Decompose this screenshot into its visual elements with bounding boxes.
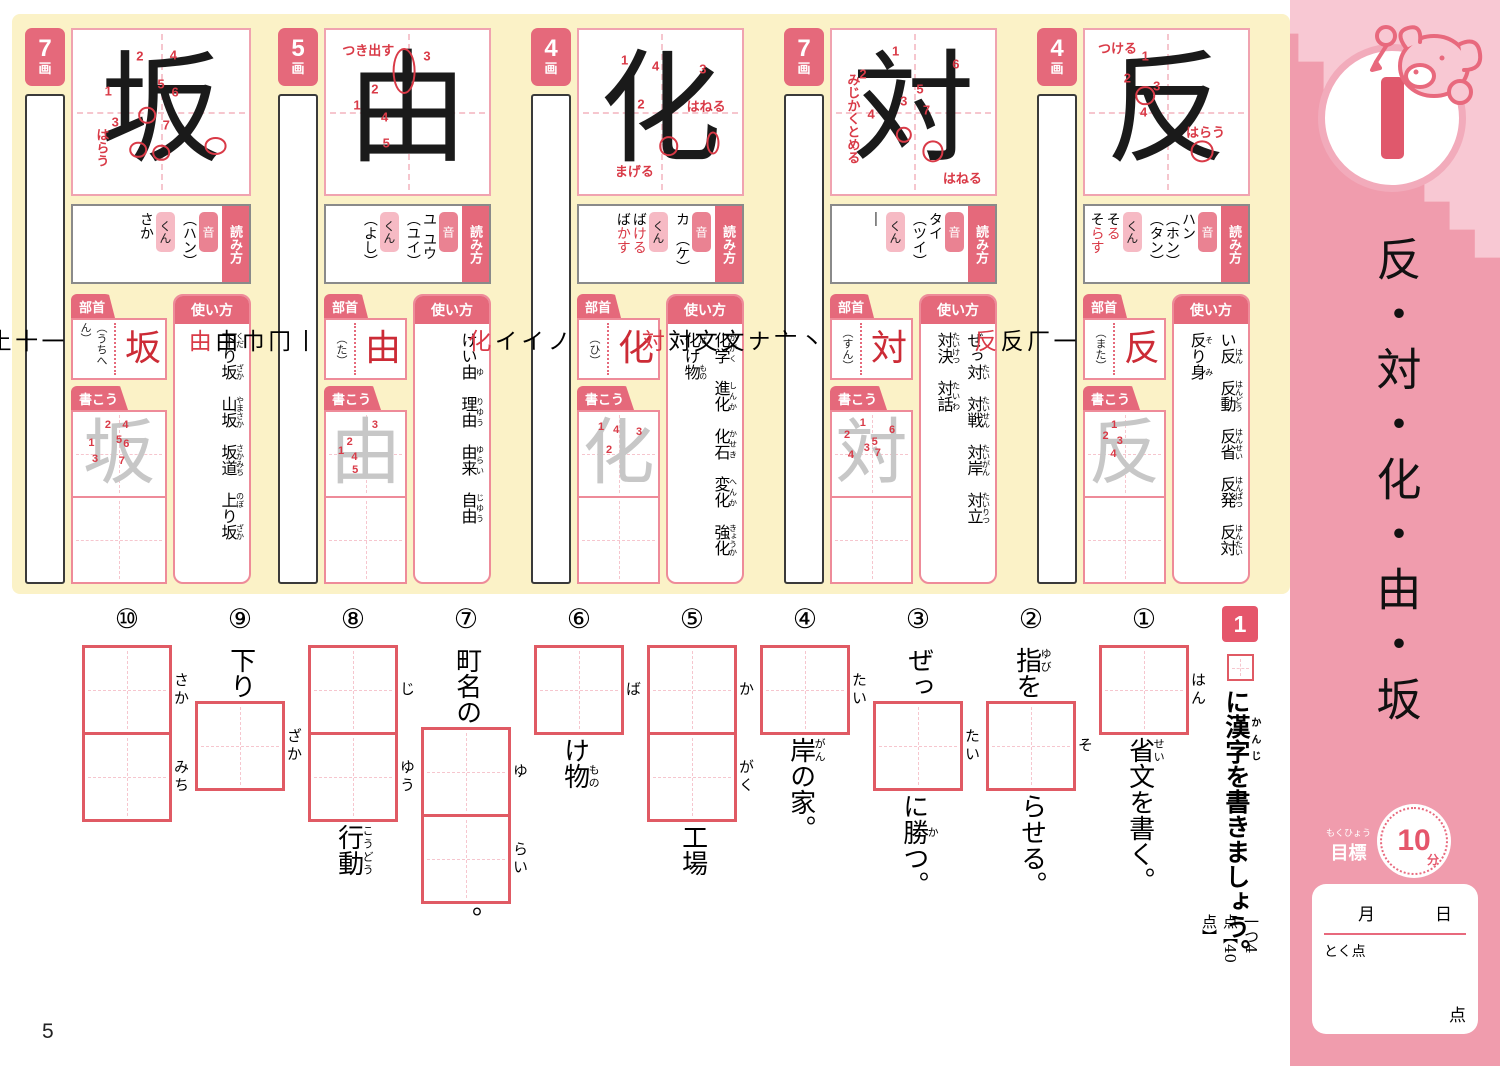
- kanji-display-box: 反1234つけるはらう: [1083, 28, 1250, 196]
- kun-reading-item: （よし）: [362, 212, 378, 268]
- on-tag: 音: [945, 212, 964, 252]
- on-tag: 音: [1198, 212, 1217, 252]
- radical-kanji: 由: [365, 331, 401, 367]
- stroke-number: 2: [606, 444, 612, 456]
- answer-box[interactable]: そ: [986, 701, 1076, 791]
- stroke-order-step: ナ: [743, 101, 769, 582]
- stroke-number: 1: [105, 83, 112, 98]
- stroke-highlight-circle: [393, 48, 416, 94]
- answer-box[interactable]: じ: [308, 645, 398, 735]
- guide-line: [1144, 651, 1145, 729]
- score-label: とく点: [1324, 941, 1466, 961]
- stroke-order-step: イ: [516, 101, 542, 582]
- radical-tab: 部首: [324, 294, 368, 318]
- stroke-number: 1: [892, 44, 899, 59]
- answer-box[interactable]: ゆ: [421, 727, 511, 817]
- guide-line: [805, 651, 806, 729]
- stroke-number: 2: [136, 49, 143, 64]
- furigana-hint: さか: [171, 672, 192, 708]
- guide-line: [127, 651, 128, 729]
- kanji-display-box: 坂1234567はらう: [71, 28, 251, 196]
- radical-box: 由（た）: [324, 318, 407, 380]
- stroke-order-step: 厂: [1022, 101, 1048, 582]
- stroke-count: 7: [797, 37, 810, 61]
- stroke-order-step: 土: [0, 101, 10, 582]
- stroke-order-strip: ノイイ化: [531, 94, 571, 584]
- on-reading-item: （ケ）: [674, 232, 690, 274]
- trace-cell[interactable]: 由32145: [326, 412, 405, 496]
- kanji-display-box: 由32145つき出す: [324, 28, 491, 196]
- kun-reading-text: （よし）: [362, 210, 378, 280]
- kanji-columns: 7画一十土坅坂坂坂坂1234567はらう読み方音（ハン）くんさか使い方下くだり坂…: [25, 28, 1290, 584]
- on-reading: 音（ハン）: [179, 206, 222, 282]
- on-reading-text: ハン（ホン）（タン）: [1148, 210, 1196, 280]
- guide-line: [619, 501, 620, 579]
- answer-box[interactable]: みち: [82, 732, 172, 822]
- furigana-hint: そ: [1075, 737, 1096, 755]
- write-practice-tab: 書こう: [1083, 386, 1140, 410]
- question: ④たい岸がんの家。: [755, 606, 855, 964]
- usage-word: い反はん: [1217, 332, 1243, 364]
- furigana-hint: ゆう: [397, 759, 418, 795]
- on-reading-item: （ツイ）: [911, 212, 927, 268]
- stroke-number: 3: [92, 453, 98, 465]
- question: ⑦町名のゆらい。: [416, 606, 516, 964]
- trace-cell[interactable]: 化1432: [579, 412, 658, 496]
- trace-kanji: 反: [1088, 417, 1160, 489]
- on-reading-item: （ホン）: [1164, 212, 1180, 268]
- stroke-number: 3: [636, 426, 642, 438]
- stroke-number: 2: [1124, 70, 1131, 85]
- stroke-number: 4: [613, 424, 619, 436]
- exercise-number-badge: 1: [1222, 606, 1258, 642]
- kun-reading: くん（よし）: [360, 206, 403, 282]
- on-reading-item: ユ: [421, 212, 437, 226]
- furigana-hint: たい: [849, 672, 870, 708]
- stroke-number: 7: [119, 455, 125, 467]
- on-reading-item: （ハン）: [181, 212, 197, 268]
- guide-line: [1125, 501, 1126, 579]
- question-number: ⑦: [454, 606, 478, 633]
- answer-box[interactable]: ざか: [195, 701, 285, 791]
- trace-cell[interactable]: 対1265374: [832, 412, 911, 496]
- stroke-order-step: 丶: [796, 101, 822, 582]
- question-number: ①: [1132, 606, 1156, 633]
- guide-line: [1240, 659, 1241, 676]
- stroke-highlight-circle: [152, 145, 170, 161]
- radical-tab: 部首: [1083, 294, 1127, 318]
- stroke-highlight-circle: [138, 107, 156, 123]
- usage-box: 使い方い反はん反動はんどう反省はんせい反発はんぱつ反対はんたい反そり身み: [1172, 294, 1250, 584]
- guide-line: [127, 738, 128, 816]
- readings-box: 読み方音ユユウ（ユイ）くん（よし）: [324, 204, 491, 284]
- stroke-number: 4: [351, 451, 357, 463]
- kanji-column: 4画一厂反反反1234つけるはらう読み方音ハン（ホン）（タン）くんそるそらす使い…: [1037, 28, 1250, 584]
- kun-reading-item: そらす: [1089, 212, 1105, 254]
- write-practice-tab: 書こう: [577, 386, 634, 410]
- stroke-number: 2: [844, 429, 850, 441]
- radical-tab: 部首: [71, 294, 115, 318]
- goal-time: もくひょう 目標 10 分: [1326, 804, 1451, 878]
- answer-box[interactable]: さか: [82, 645, 172, 735]
- on-tag: 音: [692, 212, 711, 252]
- stroke-order-step: イ: [490, 101, 516, 582]
- stroke-number: 4: [122, 419, 128, 431]
- on-reading-item: タイ: [927, 212, 943, 240]
- answer-box[interactable]: か: [647, 645, 737, 735]
- kanji-column: 5画丨冂巾由由由32145つき出す読み方音ユユウ（ユイ）くん（よし）使い方けい由…: [278, 28, 491, 584]
- radical-name: （すん）: [839, 327, 855, 371]
- trace-cell[interactable]: 坂1234567: [73, 412, 165, 496]
- usage-word: 反省はんせい: [1217, 428, 1243, 460]
- readings-header: 読み方: [1221, 206, 1248, 282]
- practice-cell[interactable]: [579, 496, 658, 582]
- stroke-order-step: 冂: [263, 101, 289, 582]
- radical-name: （ひ）: [586, 333, 602, 366]
- stroke-annotation: はらう: [1186, 122, 1225, 141]
- stroke-number: 7: [923, 103, 930, 118]
- guide-line: [353, 738, 354, 816]
- stroke-count-badge: 7画: [784, 28, 824, 86]
- usage-word: 反発はんぱつ: [1217, 476, 1243, 508]
- on-reading-item: ハン: [1180, 212, 1196, 240]
- stroke-order-strip: 一十土坅坂坂坂: [25, 94, 65, 584]
- stroke-highlight-circle: [129, 142, 147, 158]
- stroke-number: 6: [171, 85, 178, 100]
- answer-box[interactable]: がく: [647, 732, 737, 822]
- question-number: ③: [906, 606, 930, 633]
- write-practice-tab: 書こう: [830, 386, 887, 410]
- kun-reading-text: さか: [138, 210, 154, 280]
- question-text: らせる。: [1015, 793, 1046, 897]
- radical-divider: [860, 323, 862, 375]
- kanji-column: 7画丶亠ナ文文対対対1265374みじかくとめるはねる読み方音タイ（ツイ）くん―…: [784, 28, 997, 584]
- guide-line: [918, 707, 919, 785]
- stroke-annotation: つける: [1098, 38, 1137, 57]
- readings-box: 読み方音ハン（ホン）（タン）くんそるそらす: [1083, 204, 1250, 284]
- dog-illustration: [1356, 14, 1496, 124]
- question-text: ぜっ: [902, 647, 933, 699]
- answer-box[interactable]: ゆう: [308, 732, 398, 822]
- readings-box: 読み方音タイ（ツイ）くん―: [830, 204, 997, 284]
- okurigana: かす: [615, 226, 631, 254]
- stroke-number: 4: [1140, 105, 1147, 120]
- stroke-number: 4: [381, 109, 388, 124]
- kanji-display-box: 化1432はねるまげる: [577, 28, 744, 196]
- stroke-count-unit: 画: [291, 61, 304, 77]
- stroke-number: 3: [900, 93, 907, 108]
- stroke-order-step: 丨: [290, 101, 316, 582]
- practice-cell[interactable]: [326, 496, 405, 582]
- kun-reading-text: そるそらす: [1089, 210, 1121, 280]
- stroke-annotation: はらう: [92, 128, 111, 167]
- furigana-hint: か: [736, 681, 757, 699]
- stroke-number: 4: [848, 449, 854, 461]
- question-text: 。: [450, 906, 481, 932]
- stroke-number: 1: [88, 437, 94, 449]
- radical-divider: [114, 323, 116, 375]
- radical-kanji: 対: [871, 331, 907, 367]
- question: ⑩さかみち: [77, 606, 177, 964]
- page-number: 5: [42, 1020, 54, 1044]
- kun-reading-item: さか: [138, 212, 154, 240]
- guide-line: [692, 651, 693, 729]
- day-label: 日: [1435, 900, 1452, 925]
- write-practice-tab: 書こう: [71, 386, 128, 410]
- kun-reading-item: ―: [868, 212, 884, 226]
- guide-line: [240, 707, 241, 785]
- answer-box-icon: [1227, 654, 1254, 681]
- question-number: ⑥: [567, 606, 591, 633]
- stroke-highlight-circle: [706, 132, 719, 155]
- stroke-number: 3: [372, 419, 378, 431]
- exercise-section: 1に漢字かんじを書きましょう。一つ4点【40点】①はん省せい文を書く。②指ゆびを…: [25, 606, 1273, 964]
- practice-cell[interactable]: [832, 496, 911, 582]
- stroke-highlight-circle: [1136, 86, 1156, 106]
- question: ⑤かがく工場: [642, 606, 742, 964]
- score-unit-label: 点: [1449, 1001, 1466, 1026]
- usage-word: 反そり身み: [1187, 332, 1213, 380]
- stroke-highlight-circle: [204, 137, 227, 155]
- guide-line: [579, 651, 580, 729]
- furigana-hint: はん: [1188, 672, 1209, 708]
- usage-list: い反はん反動はんどう反省はんせい反発はんぱつ反対はんたい反そり身み: [1174, 324, 1248, 582]
- on-reading-text: （ハン）: [181, 210, 197, 280]
- guide-line: [466, 820, 467, 898]
- stroke-count-unit: 画: [797, 61, 810, 77]
- guide-line: [692, 738, 693, 816]
- stroke-count-unit: 画: [1050, 61, 1063, 77]
- question: ③ぜったいに勝かつ。: [868, 606, 968, 964]
- usage-word: 反動はんどう: [1217, 380, 1243, 412]
- on-reading-item: （タン）: [1148, 212, 1164, 268]
- question-number: ②: [1019, 606, 1043, 633]
- kun-reading: くん―: [866, 206, 909, 282]
- guide-line: [1031, 707, 1032, 785]
- stroke-count-unit: 画: [38, 61, 51, 77]
- usage-word: 反対はんたい: [1217, 524, 1243, 556]
- usage-header: 使い方: [1174, 296, 1248, 324]
- stroke-number: 3: [423, 49, 430, 64]
- furigana-hint: ざか: [284, 728, 305, 764]
- furigana-hint: みち: [171, 759, 192, 795]
- stroke-number: 5: [352, 464, 358, 476]
- stroke-number: 7: [163, 118, 170, 133]
- question-number: ⑤: [680, 606, 704, 633]
- readings-header: 読み方: [968, 206, 995, 282]
- stroke-highlight-circle: [659, 137, 679, 157]
- question: ⑧じゆう行動こうどう: [303, 606, 403, 964]
- stroke-count: 7: [38, 37, 51, 61]
- exercise-header: 1に漢字かんじを書きましょう。一つ4点【40点】: [1207, 606, 1273, 964]
- stroke-number: 2: [347, 436, 353, 448]
- question-text: 下り: [224, 647, 255, 699]
- kun-reading-item: ばかす: [615, 212, 631, 254]
- on-reading-item: カ: [674, 212, 690, 226]
- stroke-number: 4: [1110, 448, 1116, 460]
- kun-tag: くん: [380, 212, 399, 252]
- stroke-order-step: 一: [37, 101, 63, 582]
- stroke-count: 5: [291, 37, 304, 61]
- stroke-number: 1: [621, 52, 628, 67]
- radical-name: （た）: [333, 333, 349, 366]
- stroke-number: 6: [889, 424, 895, 436]
- question-text: 指ゆびを: [1010, 647, 1051, 699]
- kun-reading: くんそるそらす: [1087, 206, 1146, 282]
- write-practice-box: 由32145: [324, 410, 407, 584]
- stroke-count-badge: 7画: [25, 28, 65, 86]
- stroke-number: 5: [383, 136, 390, 151]
- radical-tab: 部首: [577, 294, 621, 318]
- usage-word: 対決たいけつ: [934, 332, 960, 364]
- stroke-number: 2: [637, 96, 644, 111]
- guide-line: [366, 501, 367, 579]
- stroke-number: 1: [1111, 419, 1117, 431]
- clock-icon: 10 分: [1377, 804, 1451, 878]
- score-box: 月 日 とく点 点: [1312, 884, 1478, 1034]
- readings-header: 読み方: [715, 206, 742, 282]
- kun-reading-text: ばけるばかす: [615, 210, 647, 280]
- question-number: ⑩: [115, 606, 139, 633]
- date-fields[interactable]: 月 日: [1324, 894, 1466, 935]
- on-reading-text: タイ（ツイ）: [911, 210, 943, 280]
- radical-divider: [1113, 323, 1115, 375]
- kun-reading-item: ばける: [631, 212, 647, 254]
- readings-box: 読み方音カ（ケ）くんばけるばかす: [577, 204, 744, 284]
- kun-tag: くん: [886, 212, 905, 252]
- furigana-hint: がく: [736, 759, 757, 795]
- stroke-number: 4: [867, 106, 874, 121]
- answer-box[interactable]: たい: [873, 701, 963, 791]
- stroke-number: 5: [916, 82, 923, 97]
- answer-box[interactable]: らい: [421, 814, 511, 904]
- stroke-count-badge: 4画: [1037, 28, 1077, 86]
- stroke-number: 1: [860, 417, 866, 429]
- stroke-number: 5: [116, 434, 122, 446]
- stroke-annotation: つき出す: [342, 40, 394, 59]
- okurigana: ける: [631, 226, 647, 254]
- unit-title: 反・対・化・由・坂: [1373, 236, 1418, 731]
- kun-tag: くん: [1123, 212, 1142, 252]
- question-number: ⑧: [341, 606, 365, 633]
- question-text: 工場: [676, 824, 707, 876]
- stroke-number: 4: [170, 47, 177, 62]
- question-text: け物もの: [558, 737, 599, 789]
- on-reading-item: ユウ: [421, 232, 437, 260]
- stroke-count-badge: 5画: [278, 28, 318, 86]
- write-practice-box: 反1234: [1083, 410, 1166, 584]
- question-text: 行動こうどう: [332, 824, 373, 876]
- stroke-order-strip: 丶亠ナ文文対対: [784, 94, 824, 584]
- radical-box: 坂（うちへん）: [71, 318, 167, 380]
- guide-line: [872, 501, 873, 579]
- okurigana: る: [1105, 226, 1121, 240]
- guide-line: [119, 501, 120, 579]
- stroke-number: 6: [123, 438, 129, 450]
- trace-cell[interactable]: 反1234: [1085, 412, 1164, 496]
- sidebar: 反・対・化・由・坂 もくひょう 目標 10 分 月 日 とく点 点: [1290, 0, 1500, 1066]
- write-practice-tab: 書こう: [324, 386, 381, 410]
- write-practice-box: 対1265374: [830, 410, 913, 584]
- kun-reading: くんさか: [136, 206, 179, 282]
- kun-reading: くんばけるばかす: [613, 206, 672, 282]
- stroke-number: 1: [353, 98, 360, 113]
- practice-cell[interactable]: [73, 496, 165, 582]
- month-label: 月: [1358, 900, 1375, 925]
- on-reading: 音ハン（ホン）（タン）: [1146, 206, 1221, 282]
- stroke-number: 2: [371, 82, 378, 97]
- radical-divider: [607, 323, 609, 375]
- on-reading-text: カ（ケ）: [674, 210, 690, 280]
- stroke-order-step: 亠: [769, 101, 795, 582]
- question: ②指ゆびをそらせる。: [981, 606, 1081, 964]
- stroke-number: 5: [157, 77, 164, 92]
- stroke-order-strip: 丨冂巾由由: [278, 94, 318, 584]
- stroke-number: 3: [112, 114, 119, 129]
- stroke-order-strip: 一厂反反: [1037, 94, 1077, 584]
- question-text: 省せい文を書く。: [1123, 737, 1164, 893]
- furigana-hint: らい: [510, 841, 531, 877]
- answer-box[interactable]: はん: [1099, 645, 1189, 735]
- kun-tag: くん: [649, 212, 668, 252]
- stroke-number: 1: [598, 421, 604, 433]
- stroke-count: 4: [544, 37, 557, 61]
- readings-header: 読み方: [462, 206, 489, 282]
- on-tag: 音: [439, 212, 458, 252]
- stroke-count-unit: 画: [544, 61, 557, 77]
- stroke-number: 2: [105, 419, 111, 431]
- question-text: 町名の: [450, 647, 481, 725]
- stroke-number: 3: [1117, 435, 1123, 447]
- stroke-number: 1: [1142, 49, 1149, 64]
- okurigana: らす: [1089, 226, 1105, 254]
- stroke-annotation: はねる: [687, 96, 726, 115]
- kun-tag: くん: [156, 212, 175, 252]
- goal-label: もくひょう 目標: [1326, 826, 1371, 865]
- radical-kanji: 坂: [125, 331, 161, 367]
- stroke-order-step: 反: [996, 101, 1022, 582]
- furigana-hint: じ: [397, 681, 418, 699]
- question: ⑨下りざか: [190, 606, 290, 964]
- stroke-order-step: 十: [10, 101, 36, 582]
- practice-cell[interactable]: [1085, 496, 1164, 582]
- on-reading: 音タイ（ツイ）: [909, 206, 968, 282]
- usage-word: 対話たいわ: [934, 380, 960, 412]
- answer-box[interactable]: たい: [760, 645, 850, 735]
- question-number: ⑨: [228, 606, 252, 633]
- stroke-number: 1: [338, 445, 344, 457]
- stroke-count-badge: 4画: [531, 28, 571, 86]
- stroke-annotation: まげる: [615, 161, 654, 180]
- guide-line: [353, 651, 354, 729]
- on-reading: 音カ（ケ）: [672, 206, 715, 282]
- furigana-hint: たい: [962, 728, 983, 764]
- stroke-number: 7: [875, 447, 881, 459]
- stroke-highlight-circle: [1191, 141, 1214, 162]
- stroke-annotation: みじかくとめる: [843, 73, 862, 164]
- radical-name: （うちへん）: [77, 322, 109, 376]
- furigana-hint: ゆ: [510, 763, 531, 781]
- radical-kanji: 反: [1124, 331, 1160, 367]
- question: ⑥ばけ物もの: [529, 606, 629, 964]
- workbook-page: 7画一十土坅坂坂坂坂1234567はらう読み方音（ハン）くんさか使い方下くだり坂…: [0, 0, 1500, 1066]
- question-text: に勝かつ。: [897, 793, 938, 897]
- guide-line: [466, 733, 467, 811]
- on-reading: 音ユユウ（ユイ）: [403, 206, 462, 282]
- stroke-number: 3: [699, 62, 706, 77]
- answer-box[interactable]: ば: [534, 645, 624, 735]
- stroke-number: 4: [652, 59, 659, 74]
